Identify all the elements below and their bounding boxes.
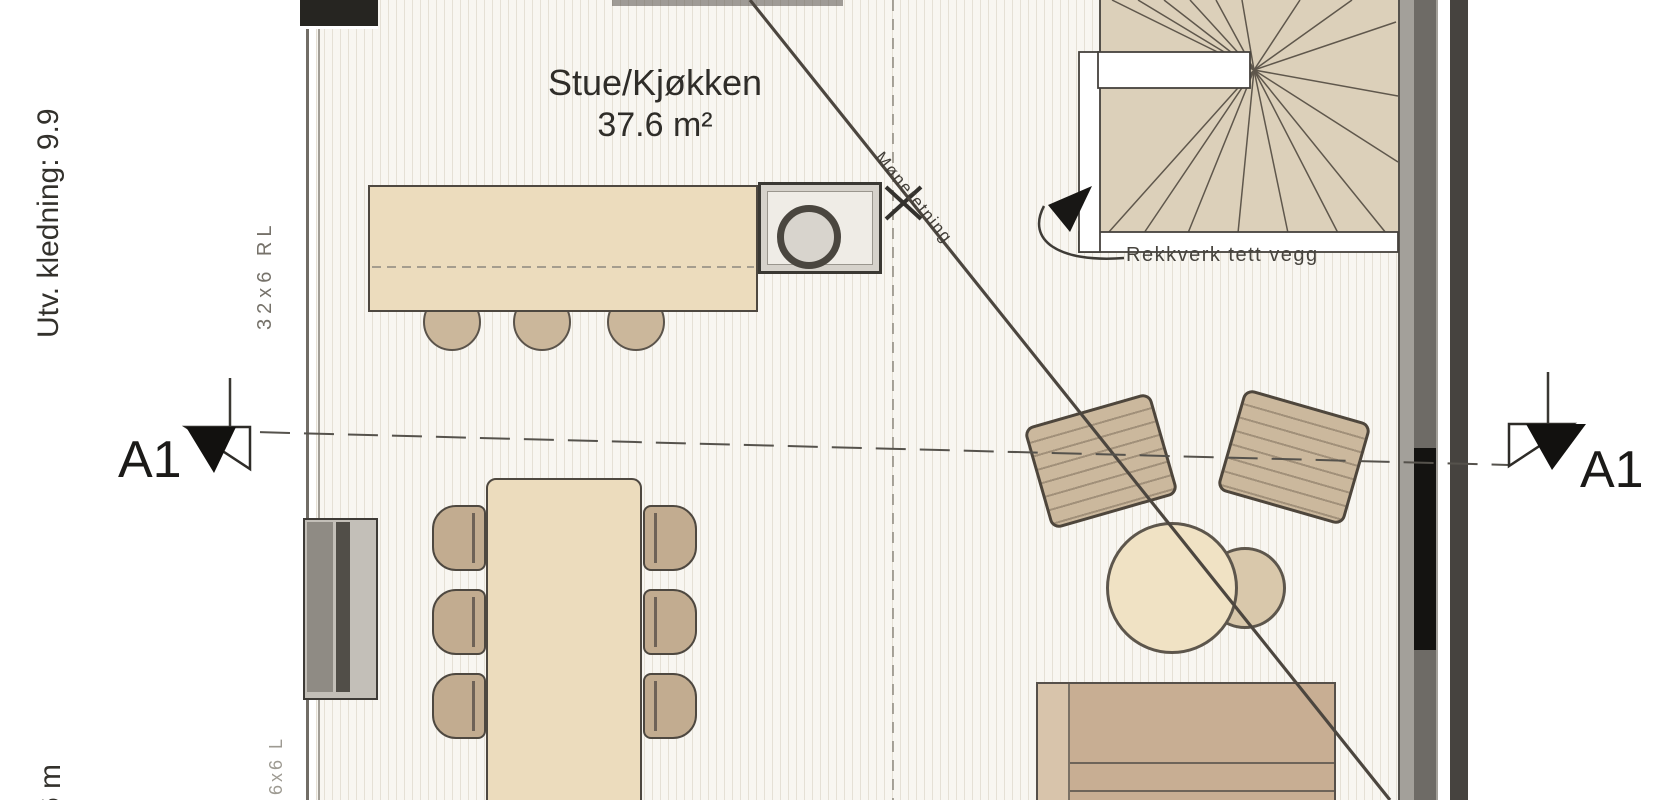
exterior-cladding-annotation: Utv. kledning: 9.9	[32, 108, 66, 338]
stair-railing-mid	[1098, 52, 1250, 88]
stud-note-lower: 6x6 L	[266, 736, 287, 795]
railing-annotation: Rekkverk tett vegg	[1126, 244, 1319, 267]
staircase	[1079, 0, 1398, 252]
stair-railing-left	[1079, 52, 1100, 252]
bottom-dimension-annotation: 6 m	[34, 764, 68, 800]
room-area-label: 37.6 m²	[495, 106, 815, 145]
stud-note-upper: 32x6 RL	[254, 221, 277, 331]
room-name-label: Stue/Kjøkken	[495, 62, 815, 104]
section-label-left: A1	[118, 430, 182, 490]
section-label-right: A1	[1580, 440, 1644, 500]
section-line-a1	[186, 372, 1586, 473]
floor-plan-canvas: Stue/Kjøkken 37.6 m² A1 A1 Rekkverk tett…	[0, 0, 1670, 800]
plan-linework	[0, 0, 1670, 800]
top-beam-line	[612, 0, 843, 6]
